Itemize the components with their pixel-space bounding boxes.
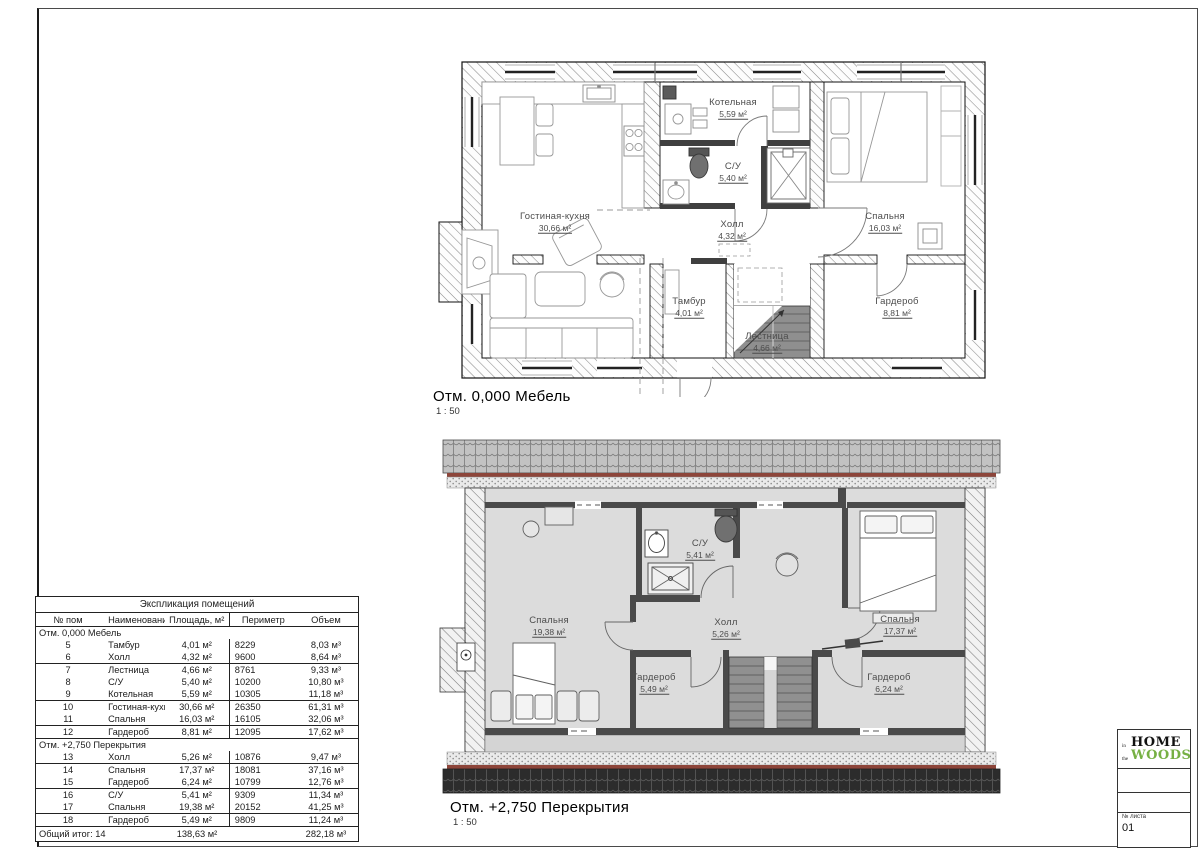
room-number: 15 (36, 776, 101, 789)
section-label: Отм. 0,000 Мебель (36, 627, 359, 640)
table-header-row: № помНаименованиеПлощадь, м²ПериметрОбъе… (36, 613, 359, 627)
room-perimeter: 20152 (229, 801, 294, 814)
room-number: 17 (36, 801, 101, 814)
room-volume: 41,25 м³ (294, 801, 359, 814)
table-row: 17Спальня19,38 м²2015241,25 м³ (36, 801, 359, 814)
room-perimeter: 10876 (229, 751, 294, 764)
room-number: 13 (36, 751, 101, 764)
total-row: Общий итог: 14138,63 м²282,18 м³ (36, 827, 359, 842)
room-name: С/У (100, 789, 165, 802)
room-name: Гостиная-кухня (100, 701, 165, 714)
room-number: 14 (36, 764, 101, 777)
column-header: Наименование (100, 613, 165, 627)
room-name: Гардероб (100, 814, 165, 827)
room-volume: 11,18 м³ (294, 688, 359, 701)
attic-floor-plan: Спальня19,38 м² С/У5,41 м² Холл5,26 м² С… (437, 435, 1007, 795)
attic-staircase (729, 657, 812, 728)
room-area: 5,49 м² (165, 814, 230, 827)
room-perimeter: 8229 (229, 639, 294, 651)
room-volume: 11,24 м³ (294, 814, 359, 827)
room-perimeter: 18081 (229, 764, 294, 777)
room-perimeter: 9600 (229, 651, 294, 664)
room-name: Котельная (100, 688, 165, 701)
section-row: Отм. 0,000 Мебель (36, 627, 359, 640)
table-row: 13Холл5,26 м²108769,47 м³ (36, 751, 359, 764)
room-volume: 8,03 м³ (294, 639, 359, 651)
room-area: 8,81 м² (165, 726, 230, 739)
room-name: Холл (100, 751, 165, 764)
attic-shower (648, 563, 693, 594)
total-volume: 282,18 м³ (294, 827, 359, 842)
room-volume: 12,76 м³ (294, 776, 359, 789)
room-volume: 32,06 м³ (294, 713, 359, 726)
room-area: 16,03 м² (165, 713, 230, 726)
column-header: Площадь, м² (165, 613, 230, 627)
room-area: 5,59 м² (165, 688, 230, 701)
room-number: 6 (36, 651, 101, 664)
room-volume: 10,80 м³ (294, 676, 359, 688)
logo-woods: WOODS (1131, 749, 1191, 762)
table-row: 14Спальня17,37 м²1808137,16 м³ (36, 764, 359, 777)
shower (767, 148, 810, 203)
ground-floor-drawing (437, 52, 990, 397)
room-number: 18 (36, 814, 101, 827)
room-perimeter: 9309 (229, 789, 294, 802)
room-area: 4,32 м² (165, 651, 230, 664)
room-name: Тамбур (100, 639, 165, 651)
room-number: 7 (36, 664, 101, 677)
stove (624, 126, 644, 156)
attic-sink (645, 530, 668, 557)
logo: inHOME theWOODS (1118, 730, 1190, 769)
room-volume: 17,62 м³ (294, 726, 359, 739)
total-area: 138,63 м² (165, 827, 230, 842)
logo-the: the (1122, 757, 1131, 762)
room-area: 5,40 м² (165, 676, 230, 688)
attic-toilet (715, 509, 737, 542)
drawing-sheet: Гостиная-кухня30,66 м² Котельная5,59 м² … (0, 0, 1200, 848)
roof-eave-band (443, 752, 1000, 793)
room-perimeter: 26350 (229, 701, 294, 714)
room-name: Спальня (100, 801, 165, 814)
table-title: Экспликация помещений (36, 597, 359, 613)
room-volume: 9,33 м³ (294, 664, 359, 677)
room-area: 17,37 м² (165, 764, 230, 777)
room-name: С/У (100, 676, 165, 688)
table-row: 18Гардероб5,49 м²980911,24 м³ (36, 814, 359, 827)
room-area: 5,41 м² (165, 789, 230, 802)
table-row: 9Котельная5,59 м²1030511,18 м³ (36, 688, 359, 701)
room-perimeter: 16105 (229, 713, 294, 726)
hallway-bench (665, 270, 679, 314)
table-row: 10Гостиная-кухня30,66 м²2635061,31 м³ (36, 701, 359, 714)
attic-plan-title: Отм. +2,750 Перекрытия 1 : 50 (450, 799, 629, 828)
room-volume: 8,64 м³ (294, 651, 359, 664)
table-title-row: Экспликация помещений (36, 597, 359, 613)
closet-strip (941, 86, 961, 186)
plan-title-text: Отм. +2,750 Перекрытия (450, 799, 629, 816)
room-volume: 11,34 м³ (294, 789, 359, 802)
room-number: 10 (36, 701, 101, 714)
room-perimeter: 12095 (229, 726, 294, 739)
attic-floor-drawing (437, 435, 1007, 795)
room-number: 12 (36, 726, 101, 739)
column-header: № пом (36, 613, 101, 627)
bed-right (860, 511, 936, 611)
room-volume: 37,16 м³ (294, 764, 359, 777)
title-block-empty-cell (1118, 769, 1190, 793)
sheet-number-value: 01 (1122, 822, 1190, 834)
column-header: Объем (294, 613, 359, 627)
room-name: Спальня (100, 764, 165, 777)
sheet-number-cell: № листа 01 (1118, 813, 1190, 845)
section-row: Отм. +2,750 Перекрытия (36, 739, 359, 752)
coffee-table (535, 272, 585, 306)
total-label: Общий итог: 14 (36, 827, 165, 842)
room-name: Холл (100, 651, 165, 664)
title-block-empty-cell (1118, 793, 1190, 813)
room-number: 11 (36, 713, 101, 726)
table-row: 16С/У5,41 м²930911,34 м³ (36, 789, 359, 802)
plan-title-text: Отм. 0,000 Мебель (433, 388, 571, 405)
room-perimeter: 8761 (229, 664, 294, 677)
room-area: 6,24 м² (165, 776, 230, 789)
room-area: 4,01 м² (165, 639, 230, 651)
room-name: Гардероб (100, 776, 165, 789)
room-volume: 61,31 м³ (294, 701, 359, 714)
table-row: 11Спальня16,03 м²1610532,06 м³ (36, 713, 359, 726)
room-area: 4,66 м² (165, 664, 230, 677)
room-perimeter: 10200 (229, 676, 294, 688)
room-volume: 9,47 м³ (294, 751, 359, 764)
title-block: inHOME theWOODS № листа 01 (1117, 729, 1191, 848)
kitchen-sink (583, 85, 615, 102)
tv-unit (918, 223, 942, 249)
room-name: Спальня (100, 713, 165, 726)
room-number: 8 (36, 676, 101, 688)
room-name: Гардероб (100, 726, 165, 739)
room-perimeter: 10799 (229, 776, 294, 789)
ground-floor-plan: Гостиная-кухня30,66 м² Котельная5,59 м² … (437, 52, 990, 397)
plan-scale: 1 : 50 (453, 817, 629, 828)
table-row: 12Гардероб8,81 м²1209517,62 м³ (36, 726, 359, 739)
table-row: 7Лестница4,66 м²87619,33 м³ (36, 664, 359, 677)
room-name: Лестница (100, 664, 165, 677)
table-row: 5Тамбур4,01 м²82298,03 м³ (36, 639, 359, 651)
plan-scale: 1 : 50 (436, 406, 571, 417)
room-perimeter: 9809 (229, 814, 294, 827)
column-header: Периметр (229, 613, 294, 627)
room-number: 9 (36, 688, 101, 701)
bed-left (513, 643, 555, 724)
sheet-number-label: № листа (1122, 814, 1190, 820)
roof-ridge-band (443, 440, 1000, 488)
room-area: 30,66 м² (165, 701, 230, 714)
table-row: 6Холл4,32 м²96008,64 м³ (36, 651, 359, 664)
bed-double (827, 92, 927, 182)
toilet (689, 148, 709, 178)
room-schedule-table: Экспликация помещений№ помНаименованиеПл… (35, 596, 359, 842)
room-area: 19,38 м² (165, 801, 230, 814)
room-area: 5,26 м² (165, 751, 230, 764)
section-label: Отм. +2,750 Перекрытия (36, 739, 359, 752)
room-number: 16 (36, 789, 101, 802)
washbasin (663, 180, 689, 204)
bench (873, 613, 913, 623)
room-number: 5 (36, 639, 101, 651)
ground-plan-title: Отм. 0,000 Мебель 1 : 50 (433, 388, 571, 417)
entrance-opening (677, 359, 712, 378)
table-row: 15Гардероб6,24 м²1079912,76 м³ (36, 776, 359, 789)
table-row: 8С/У5,40 м²1020010,80 м³ (36, 676, 359, 688)
eaves-band (485, 735, 965, 752)
room-perimeter: 10305 (229, 688, 294, 701)
